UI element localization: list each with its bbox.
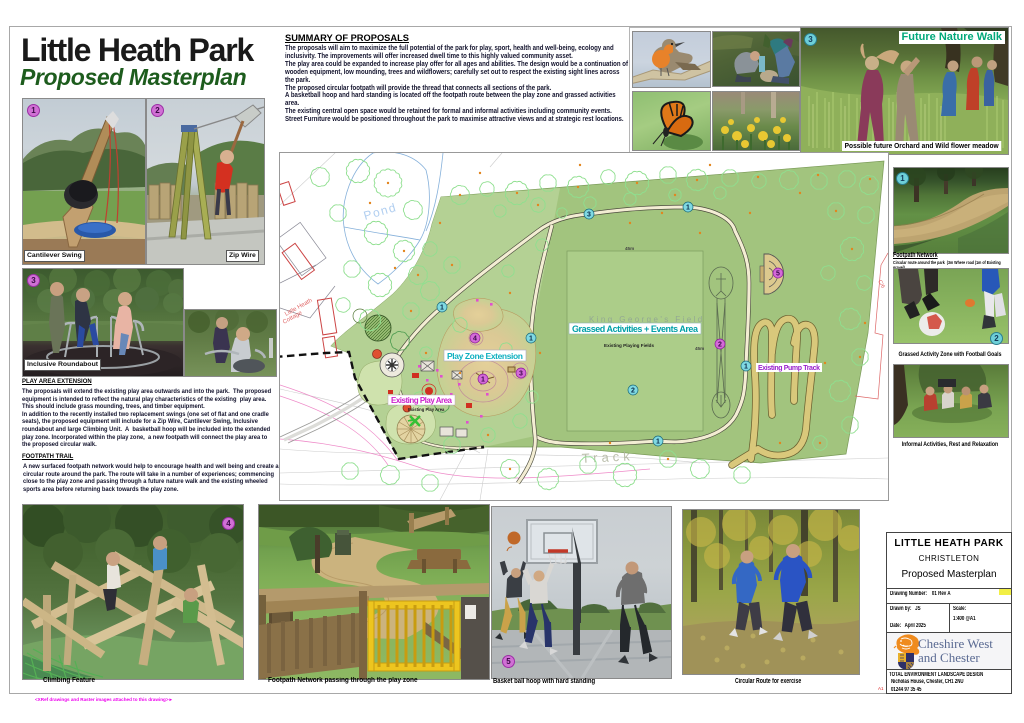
svg-text:1: 1 <box>481 377 485 384</box>
svg-text:Pond: Pond <box>362 200 399 223</box>
svg-text:4: 4 <box>473 336 477 343</box>
svg-text:1: 1 <box>529 336 533 343</box>
svg-text:Existing Play Area: Existing Play Area <box>408 407 445 412</box>
svg-text:1: 1 <box>744 364 748 371</box>
svg-text:C/6: C/6 <box>876 279 885 289</box>
svg-text:1: 1 <box>440 305 444 312</box>
svg-text:Play Zone Extension: Play Zone Extension <box>447 351 523 361</box>
svg-text:3: 3 <box>519 371 523 378</box>
svg-text:3: 3 <box>587 212 591 219</box>
svg-text:2: 2 <box>718 342 722 349</box>
svg-text:5: 5 <box>776 271 780 278</box>
svg-text:Grassed Activities + Events Ar: Grassed Activities + Events Area <box>572 324 699 334</box>
svg-text:Existing Playing Fields: Existing Playing Fields <box>604 343 654 348</box>
svg-text:1: 1 <box>656 439 660 446</box>
svg-text:45m: 45m <box>625 246 634 251</box>
svg-text:45m: 45m <box>695 346 704 351</box>
svg-text:1: 1 <box>686 205 690 212</box>
svg-text:Existing Pump Track: Existing Pump Track <box>758 365 820 372</box>
svg-text:Existing Play Area: Existing Play Area <box>391 396 453 405</box>
svg-text:2: 2 <box>631 388 635 395</box>
svg-text:King George's Field: King George's Field <box>589 315 705 324</box>
